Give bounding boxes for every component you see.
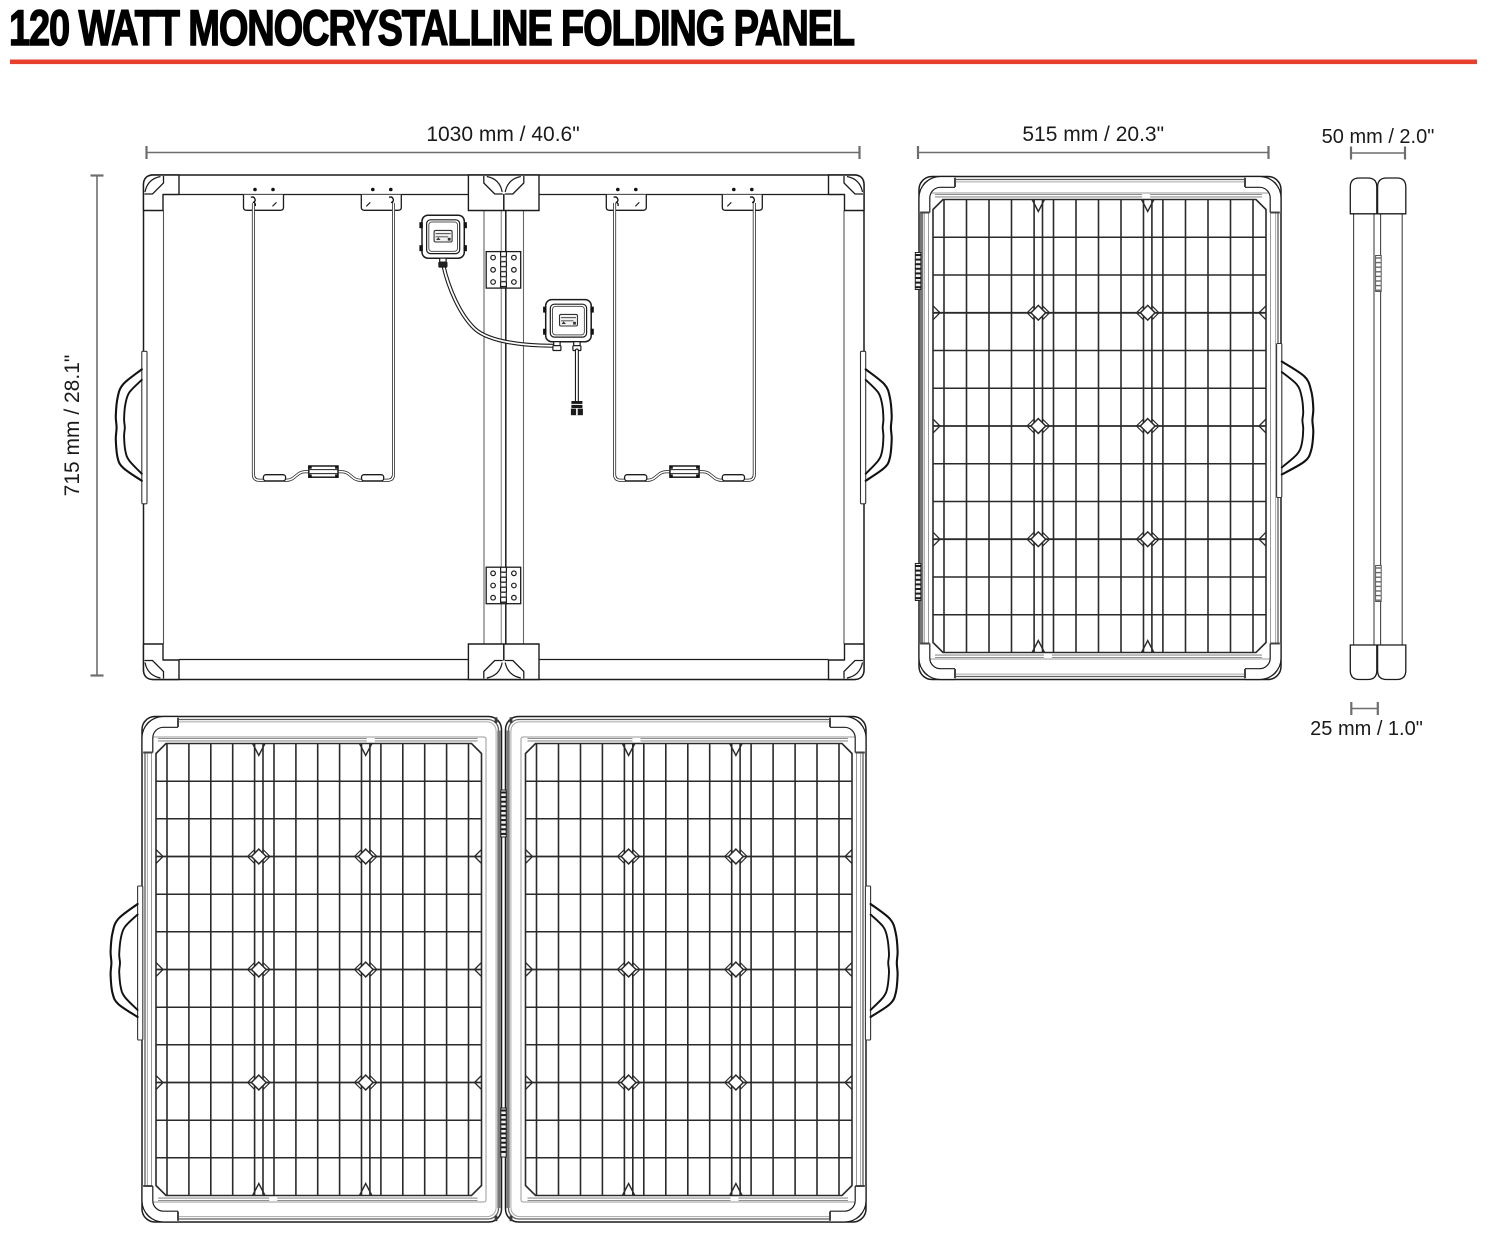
svg-text:120 WATT MONOCRYSTALLINE FOLDI: 120 WATT MONOCRYSTALLINE FOLDING PANEL xyxy=(9,0,854,56)
svg-text:715 mm / 28.1": 715 mm / 28.1" xyxy=(61,355,84,497)
svg-text:50 mm / 2.0": 50 mm / 2.0" xyxy=(1322,126,1435,148)
svg-text:515 mm / 20.3": 515 mm / 20.3" xyxy=(1022,123,1164,146)
svg-text:25 mm / 1.0": 25 mm / 1.0" xyxy=(1310,718,1423,740)
svg-text:1030 mm / 40.6": 1030 mm / 40.6" xyxy=(426,123,579,146)
